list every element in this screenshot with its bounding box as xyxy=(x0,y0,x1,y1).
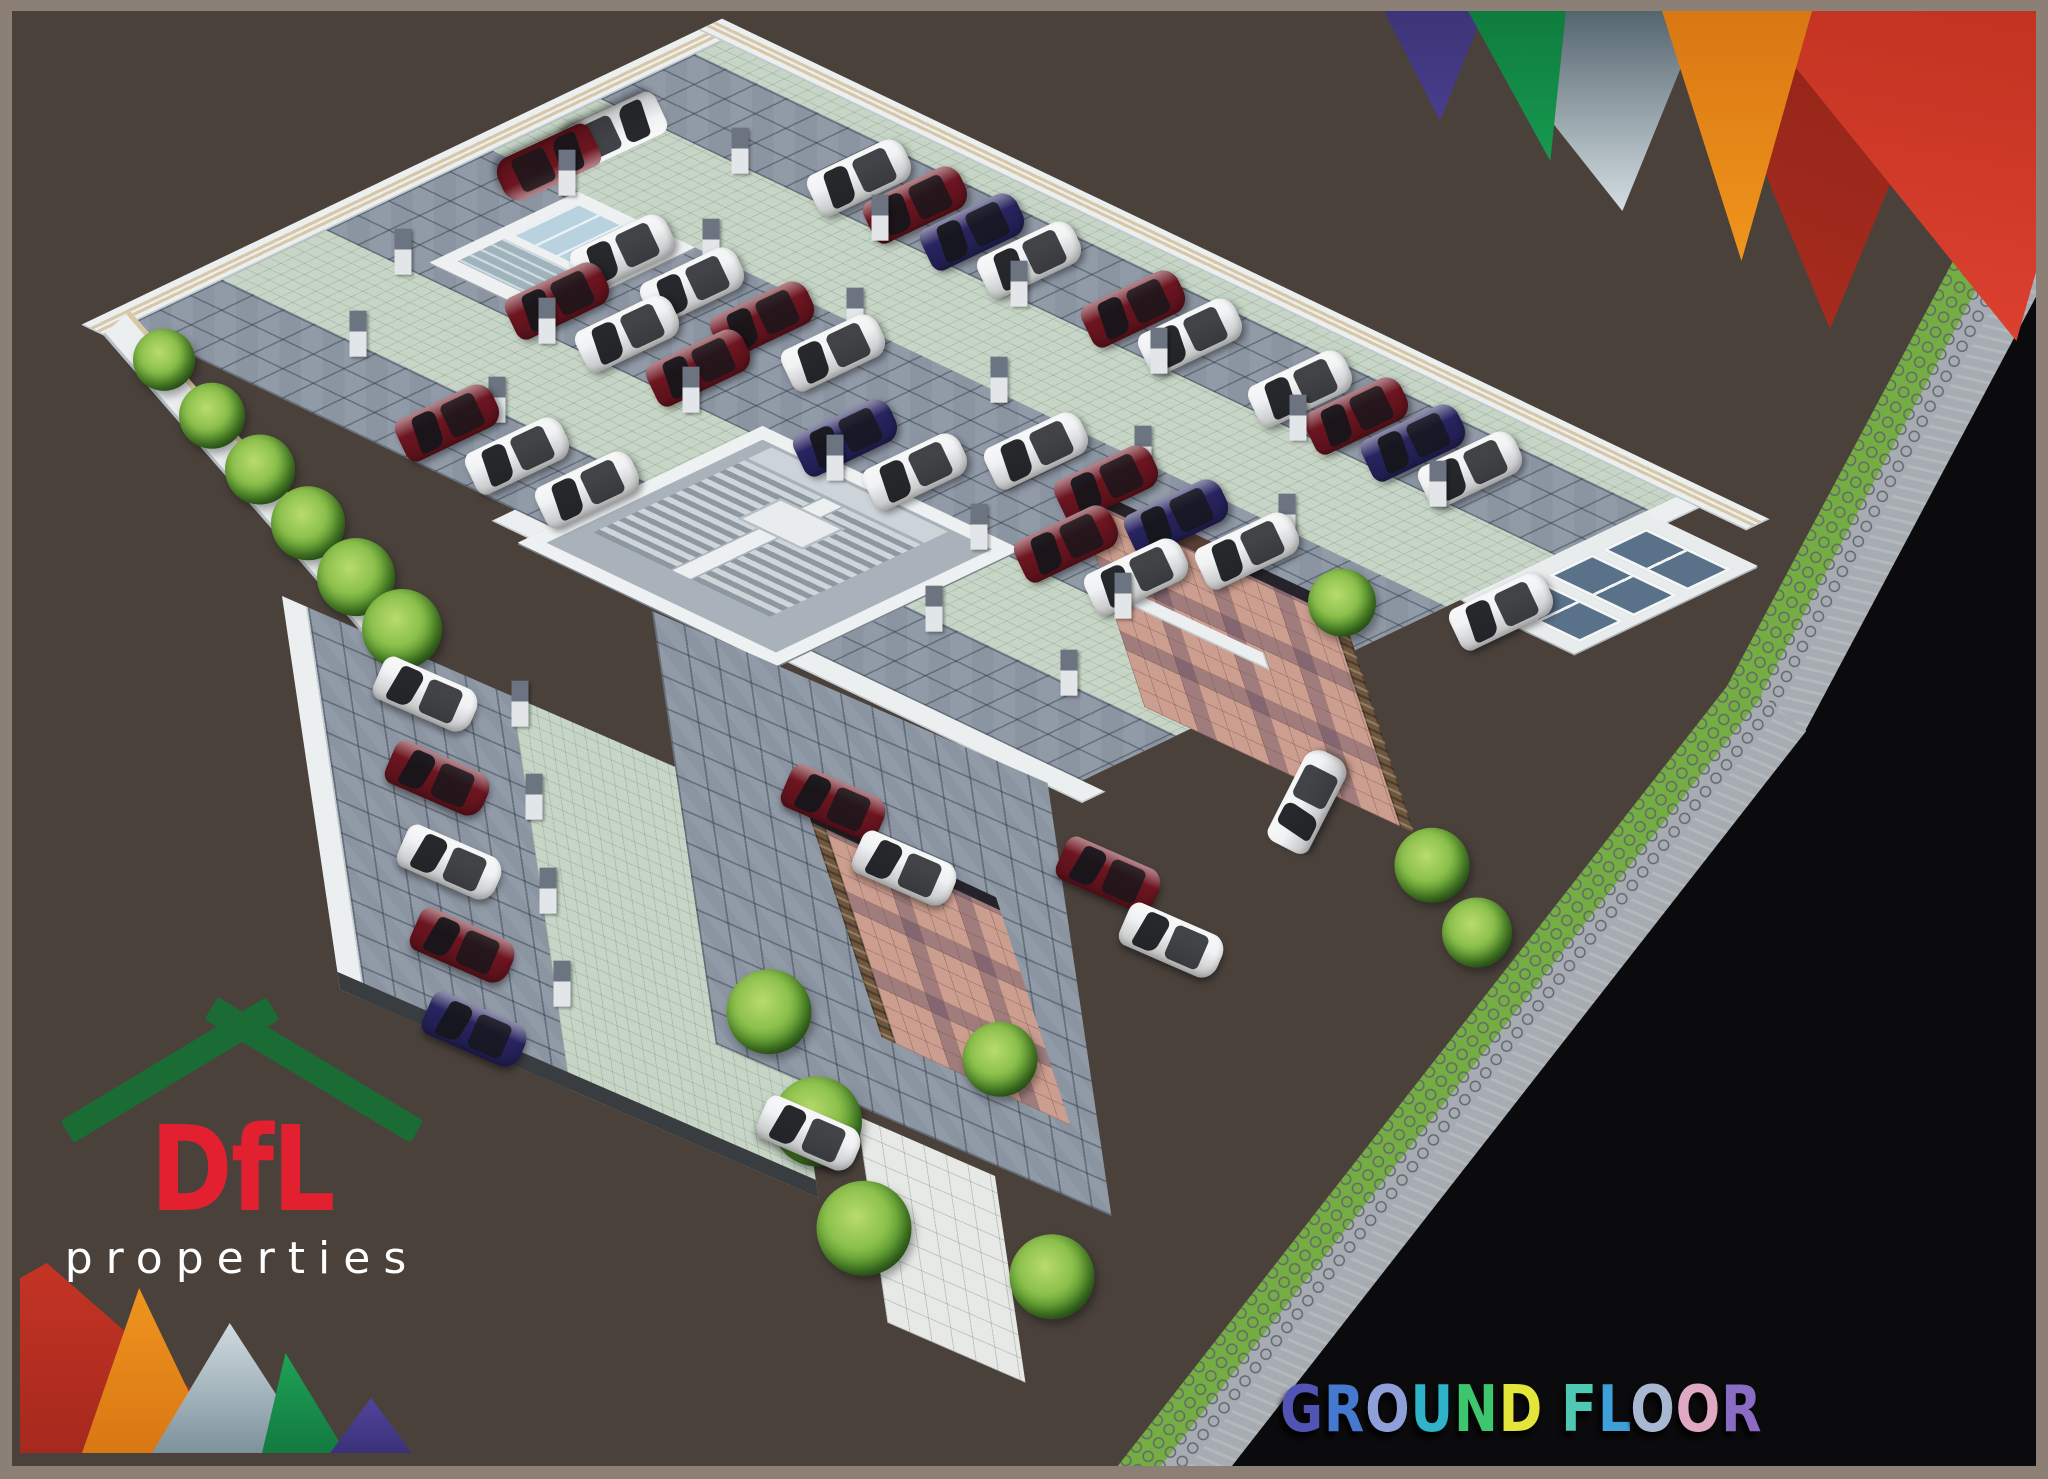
plant xyxy=(179,383,245,449)
parked-car xyxy=(369,654,483,738)
structural-column xyxy=(732,128,749,174)
parked-car xyxy=(1052,833,1166,917)
structural-column xyxy=(1011,261,1028,307)
structural-column xyxy=(925,586,942,632)
parked-car xyxy=(1264,744,1352,858)
plant xyxy=(1395,828,1470,903)
title-letter: D xyxy=(1499,1373,1543,1447)
structural-column xyxy=(1290,394,1307,440)
artwork-canvas: DfL properties GROUNDFLOOR xyxy=(12,11,2036,1466)
structural-column xyxy=(394,229,411,275)
structural-column xyxy=(871,194,888,240)
parked-car xyxy=(406,904,520,988)
logo-subtitle: properties xyxy=(32,1233,452,1284)
plant xyxy=(817,1181,912,1276)
structural-column xyxy=(538,298,555,344)
title-letter: N xyxy=(1454,1373,1499,1447)
company-logo: DfL properties xyxy=(32,993,452,1284)
poster: DfL properties GROUNDFLOOR xyxy=(0,0,2048,1479)
plant xyxy=(1010,1234,1095,1319)
structural-column xyxy=(559,150,576,196)
structural-column xyxy=(1150,328,1167,374)
structural-column xyxy=(512,680,529,726)
title-letter: R xyxy=(1721,1373,1762,1447)
parked-car xyxy=(491,120,605,206)
title-letter: G xyxy=(1280,1373,1324,1447)
title-letter: O xyxy=(1630,1373,1675,1447)
parked-car xyxy=(1115,899,1229,983)
structural-column xyxy=(970,504,987,550)
title-letter: R xyxy=(1324,1373,1365,1447)
structural-column xyxy=(1429,461,1446,507)
structural-column xyxy=(349,310,366,356)
floor-title: GROUNDFLOOR xyxy=(1280,1373,1762,1447)
structural-column xyxy=(1060,650,1077,696)
structural-column xyxy=(826,435,843,481)
parked-car xyxy=(394,821,508,905)
parked-car xyxy=(848,827,962,911)
plant xyxy=(963,1022,1038,1097)
structural-column xyxy=(526,774,543,820)
structural-column xyxy=(682,366,699,412)
plant xyxy=(1308,569,1376,637)
plant xyxy=(727,969,812,1054)
parked-car xyxy=(1445,568,1559,654)
structural-column xyxy=(539,867,556,913)
plant xyxy=(133,329,195,391)
title-letter: L xyxy=(1598,1373,1630,1447)
structural-column xyxy=(1114,573,1131,619)
plant xyxy=(362,589,442,669)
structural-column xyxy=(991,356,1008,402)
structural-column xyxy=(553,961,570,1007)
title-letter: U xyxy=(1411,1373,1454,1447)
parked-car xyxy=(381,737,495,821)
title-letter: O xyxy=(1676,1373,1721,1447)
title-letter: F xyxy=(1561,1373,1598,1447)
title-letter: O xyxy=(1365,1373,1410,1447)
plant xyxy=(1442,898,1512,968)
logo-brand-name: DfL xyxy=(66,1123,419,1215)
